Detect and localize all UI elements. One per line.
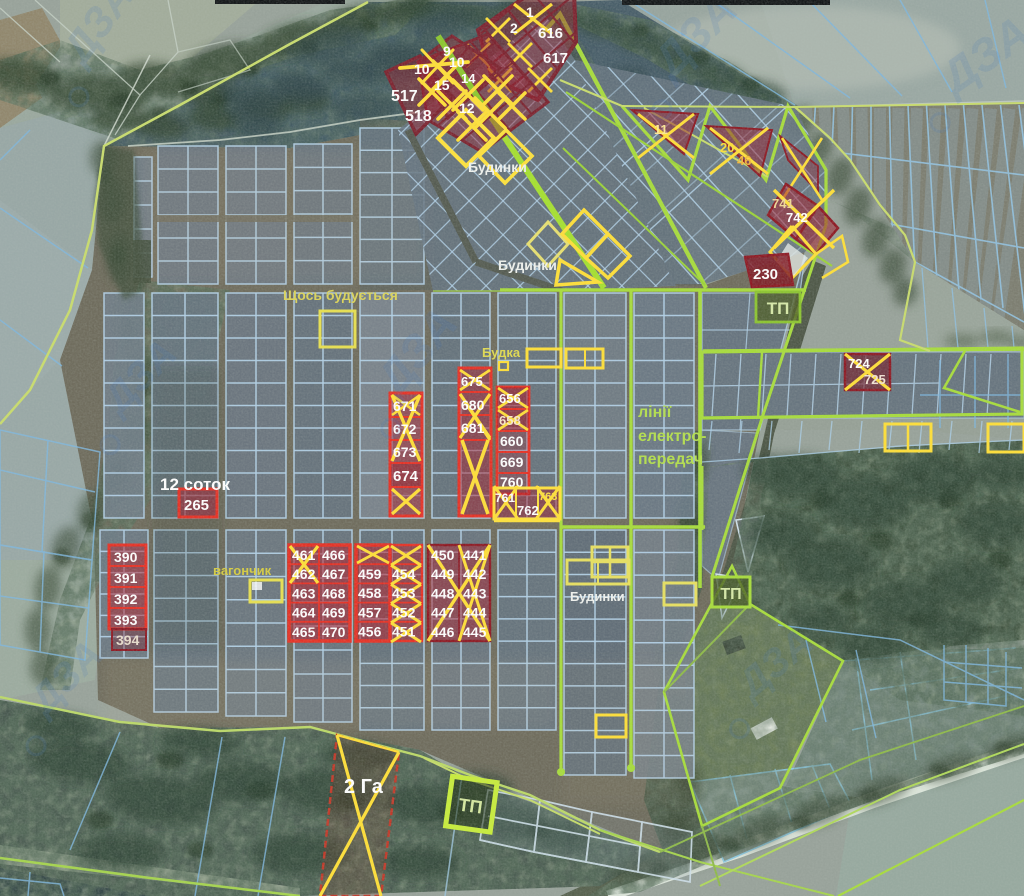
svg-text:673: 673 [393, 444, 417, 460]
svg-text:469: 469 [322, 605, 346, 621]
svg-text:453: 453 [392, 585, 416, 601]
svg-text:444: 444 [463, 605, 487, 621]
svg-text:12: 12 [459, 100, 475, 116]
svg-text:724: 724 [848, 356, 870, 371]
svg-text:725: 725 [864, 372, 886, 387]
svg-text:390: 390 [114, 549, 138, 565]
svg-text:669: 669 [500, 454, 524, 470]
svg-text:741: 741 [772, 196, 794, 211]
svg-text:675: 675 [461, 374, 483, 389]
svg-text:передач: передач [638, 451, 703, 468]
svg-text:14: 14 [461, 71, 476, 86]
svg-text:Щось будується: Щось будується [283, 287, 398, 303]
svg-text:463: 463 [292, 585, 316, 601]
svg-text:462: 462 [292, 566, 316, 582]
svg-text:518: 518 [405, 108, 432, 125]
svg-text:467: 467 [322, 566, 346, 582]
svg-text:265: 265 [184, 497, 209, 514]
svg-text:391: 391 [114, 570, 138, 586]
svg-text:11: 11 [654, 122, 668, 137]
svg-text:2: 2 [510, 20, 518, 36]
svg-text:761: 761 [495, 491, 515, 505]
svg-text:465: 465 [292, 624, 316, 640]
svg-text:ТП: ТП [767, 299, 790, 318]
svg-text:447: 447 [431, 605, 455, 621]
svg-text:442: 442 [463, 566, 487, 582]
svg-text:ТП: ТП [720, 586, 741, 603]
svg-text:Будинки: Будинки [498, 257, 557, 273]
svg-text:459: 459 [358, 566, 382, 582]
svg-text:441: 441 [463, 547, 487, 563]
svg-text:616: 616 [538, 25, 563, 42]
svg-text:763: 763 [539, 491, 557, 503]
svg-text:Будинки: Будинки [468, 159, 527, 175]
svg-text:230: 230 [753, 266, 778, 283]
svg-text:468: 468 [322, 585, 346, 601]
svg-text:443: 443 [463, 585, 487, 601]
svg-text:456: 456 [358, 624, 382, 640]
svg-text:10: 10 [414, 61, 430, 77]
svg-text:466: 466 [322, 547, 346, 563]
svg-text:470: 470 [322, 624, 346, 640]
svg-text:658: 658 [499, 413, 521, 428]
svg-text:393: 393 [114, 612, 138, 628]
svg-text:461: 461 [292, 547, 316, 563]
svg-text:464: 464 [292, 605, 316, 621]
svg-text:660: 660 [500, 433, 524, 449]
svg-text:Будинки: Будинки [570, 589, 625, 604]
svg-text:394: 394 [116, 632, 140, 648]
svg-text:10: 10 [449, 54, 465, 70]
svg-text:15: 15 [434, 77, 450, 93]
svg-text:вагончик: вагончик [213, 563, 272, 578]
svg-text:517: 517 [391, 88, 418, 105]
svg-text:452: 452 [392, 604, 416, 620]
svg-text:46: 46 [737, 153, 751, 168]
svg-text:Будка: Будка [482, 345, 521, 360]
svg-text:445: 445 [463, 624, 487, 640]
svg-text:2 Га: 2 Га [344, 776, 384, 798]
svg-text:лінії: лінії [638, 404, 672, 421]
svg-text:458: 458 [358, 585, 382, 601]
svg-text:20: 20 [720, 140, 734, 155]
svg-text:12 соток: 12 соток [160, 475, 231, 494]
svg-text:617: 617 [543, 50, 568, 67]
svg-text:742: 742 [786, 210, 808, 225]
svg-text:762: 762 [517, 503, 539, 518]
svg-text:446: 446 [431, 624, 455, 640]
svg-text:656: 656 [499, 391, 521, 406]
svg-text:448: 448 [431, 585, 455, 601]
svg-text:454: 454 [392, 566, 416, 582]
svg-text:ТП: ТП [457, 795, 483, 818]
svg-text:450: 450 [431, 547, 455, 563]
svg-text:392: 392 [114, 591, 138, 607]
svg-text:680: 680 [461, 397, 485, 413]
svg-text:451: 451 [392, 624, 416, 640]
svg-text:449: 449 [431, 566, 455, 582]
svg-text:457: 457 [358, 604, 382, 620]
svg-text:674: 674 [393, 468, 419, 485]
svg-text:1: 1 [526, 4, 534, 20]
svg-text:681: 681 [461, 420, 485, 436]
svg-text:електро-: електро- [638, 428, 706, 445]
